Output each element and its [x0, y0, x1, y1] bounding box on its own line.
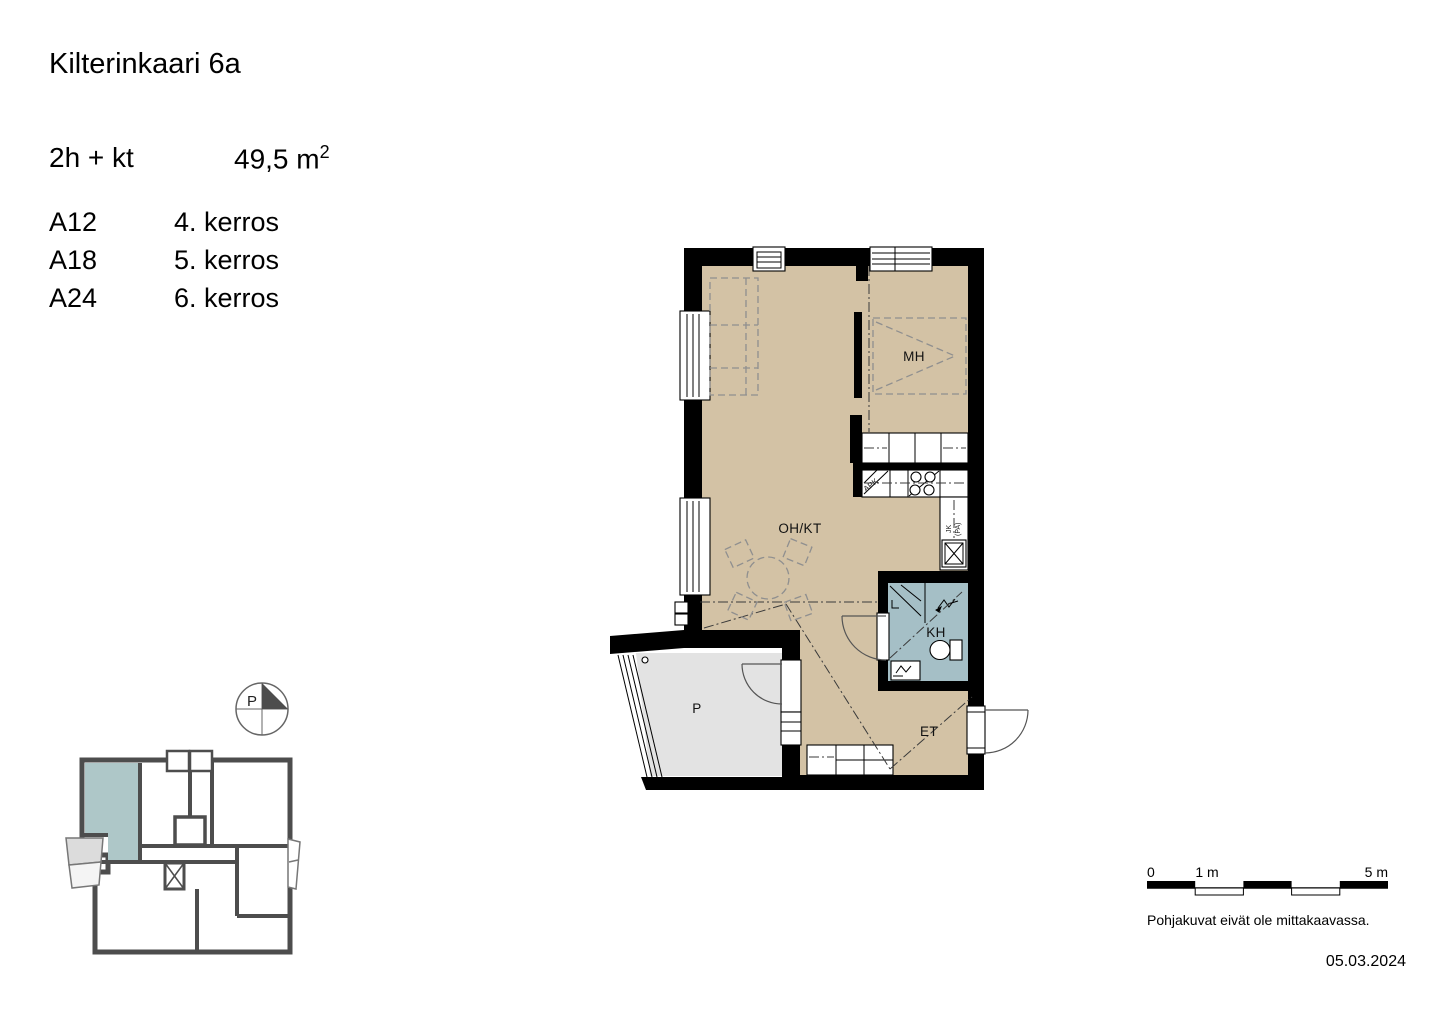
scale-bar: 0 1 m 5 m	[1147, 864, 1388, 895]
key-plan-stairwell-icon	[165, 863, 184, 889]
window-icon	[870, 247, 932, 271]
key-plan-balcony	[288, 839, 300, 889]
sink-icon	[891, 661, 920, 680]
scale-tick-five: 5 m	[1365, 864, 1388, 880]
freezer-label: (PA)	[955, 523, 962, 536]
closet-icon	[807, 745, 893, 775]
room-label-balcony: P	[692, 701, 701, 716]
date-text: 05.03.2024	[1326, 953, 1406, 970]
balcony-floor	[636, 653, 782, 776]
floor-plan-page: Kilterinkaari 6a 2h + kt 49,5 m2 A12 4. …	[0, 0, 1440, 1018]
entrance-door-icon	[967, 706, 1028, 754]
scale-tick-one: 1 m	[1195, 864, 1218, 880]
toilet-icon	[930, 640, 962, 660]
compass-north-label: P	[247, 693, 257, 710]
facade-detail	[675, 614, 688, 625]
fridge-icon	[942, 540, 966, 567]
key-plan-balcony	[66, 838, 103, 888]
apartment-plan: APK JK (PA)	[610, 247, 1028, 790]
floor-plan-canvas: APK JK (PA)	[0, 0, 1440, 1018]
room-label-hallway: ET	[920, 724, 938, 739]
facade-detail	[675, 602, 688, 613]
fridge-label: JK	[946, 525, 953, 534]
wardrobe-icon	[862, 433, 968, 463]
room-label-bathroom: KH	[926, 625, 946, 640]
room-label-bedroom: MH	[903, 349, 925, 364]
scale-tick-zero: 0	[1147, 864, 1155, 880]
disclaimer-text: Pohjakuvat eivät ole mittakaavassa.	[1147, 912, 1370, 928]
window-icon	[680, 311, 710, 400]
window-icon	[680, 498, 710, 595]
window-icon	[753, 247, 785, 271]
balcony-drain-icon	[642, 657, 648, 663]
key-plan	[66, 751, 300, 952]
compass-icon: P	[236, 683, 288, 735]
room-label-living-kitchen: OH/KT	[778, 521, 821, 536]
